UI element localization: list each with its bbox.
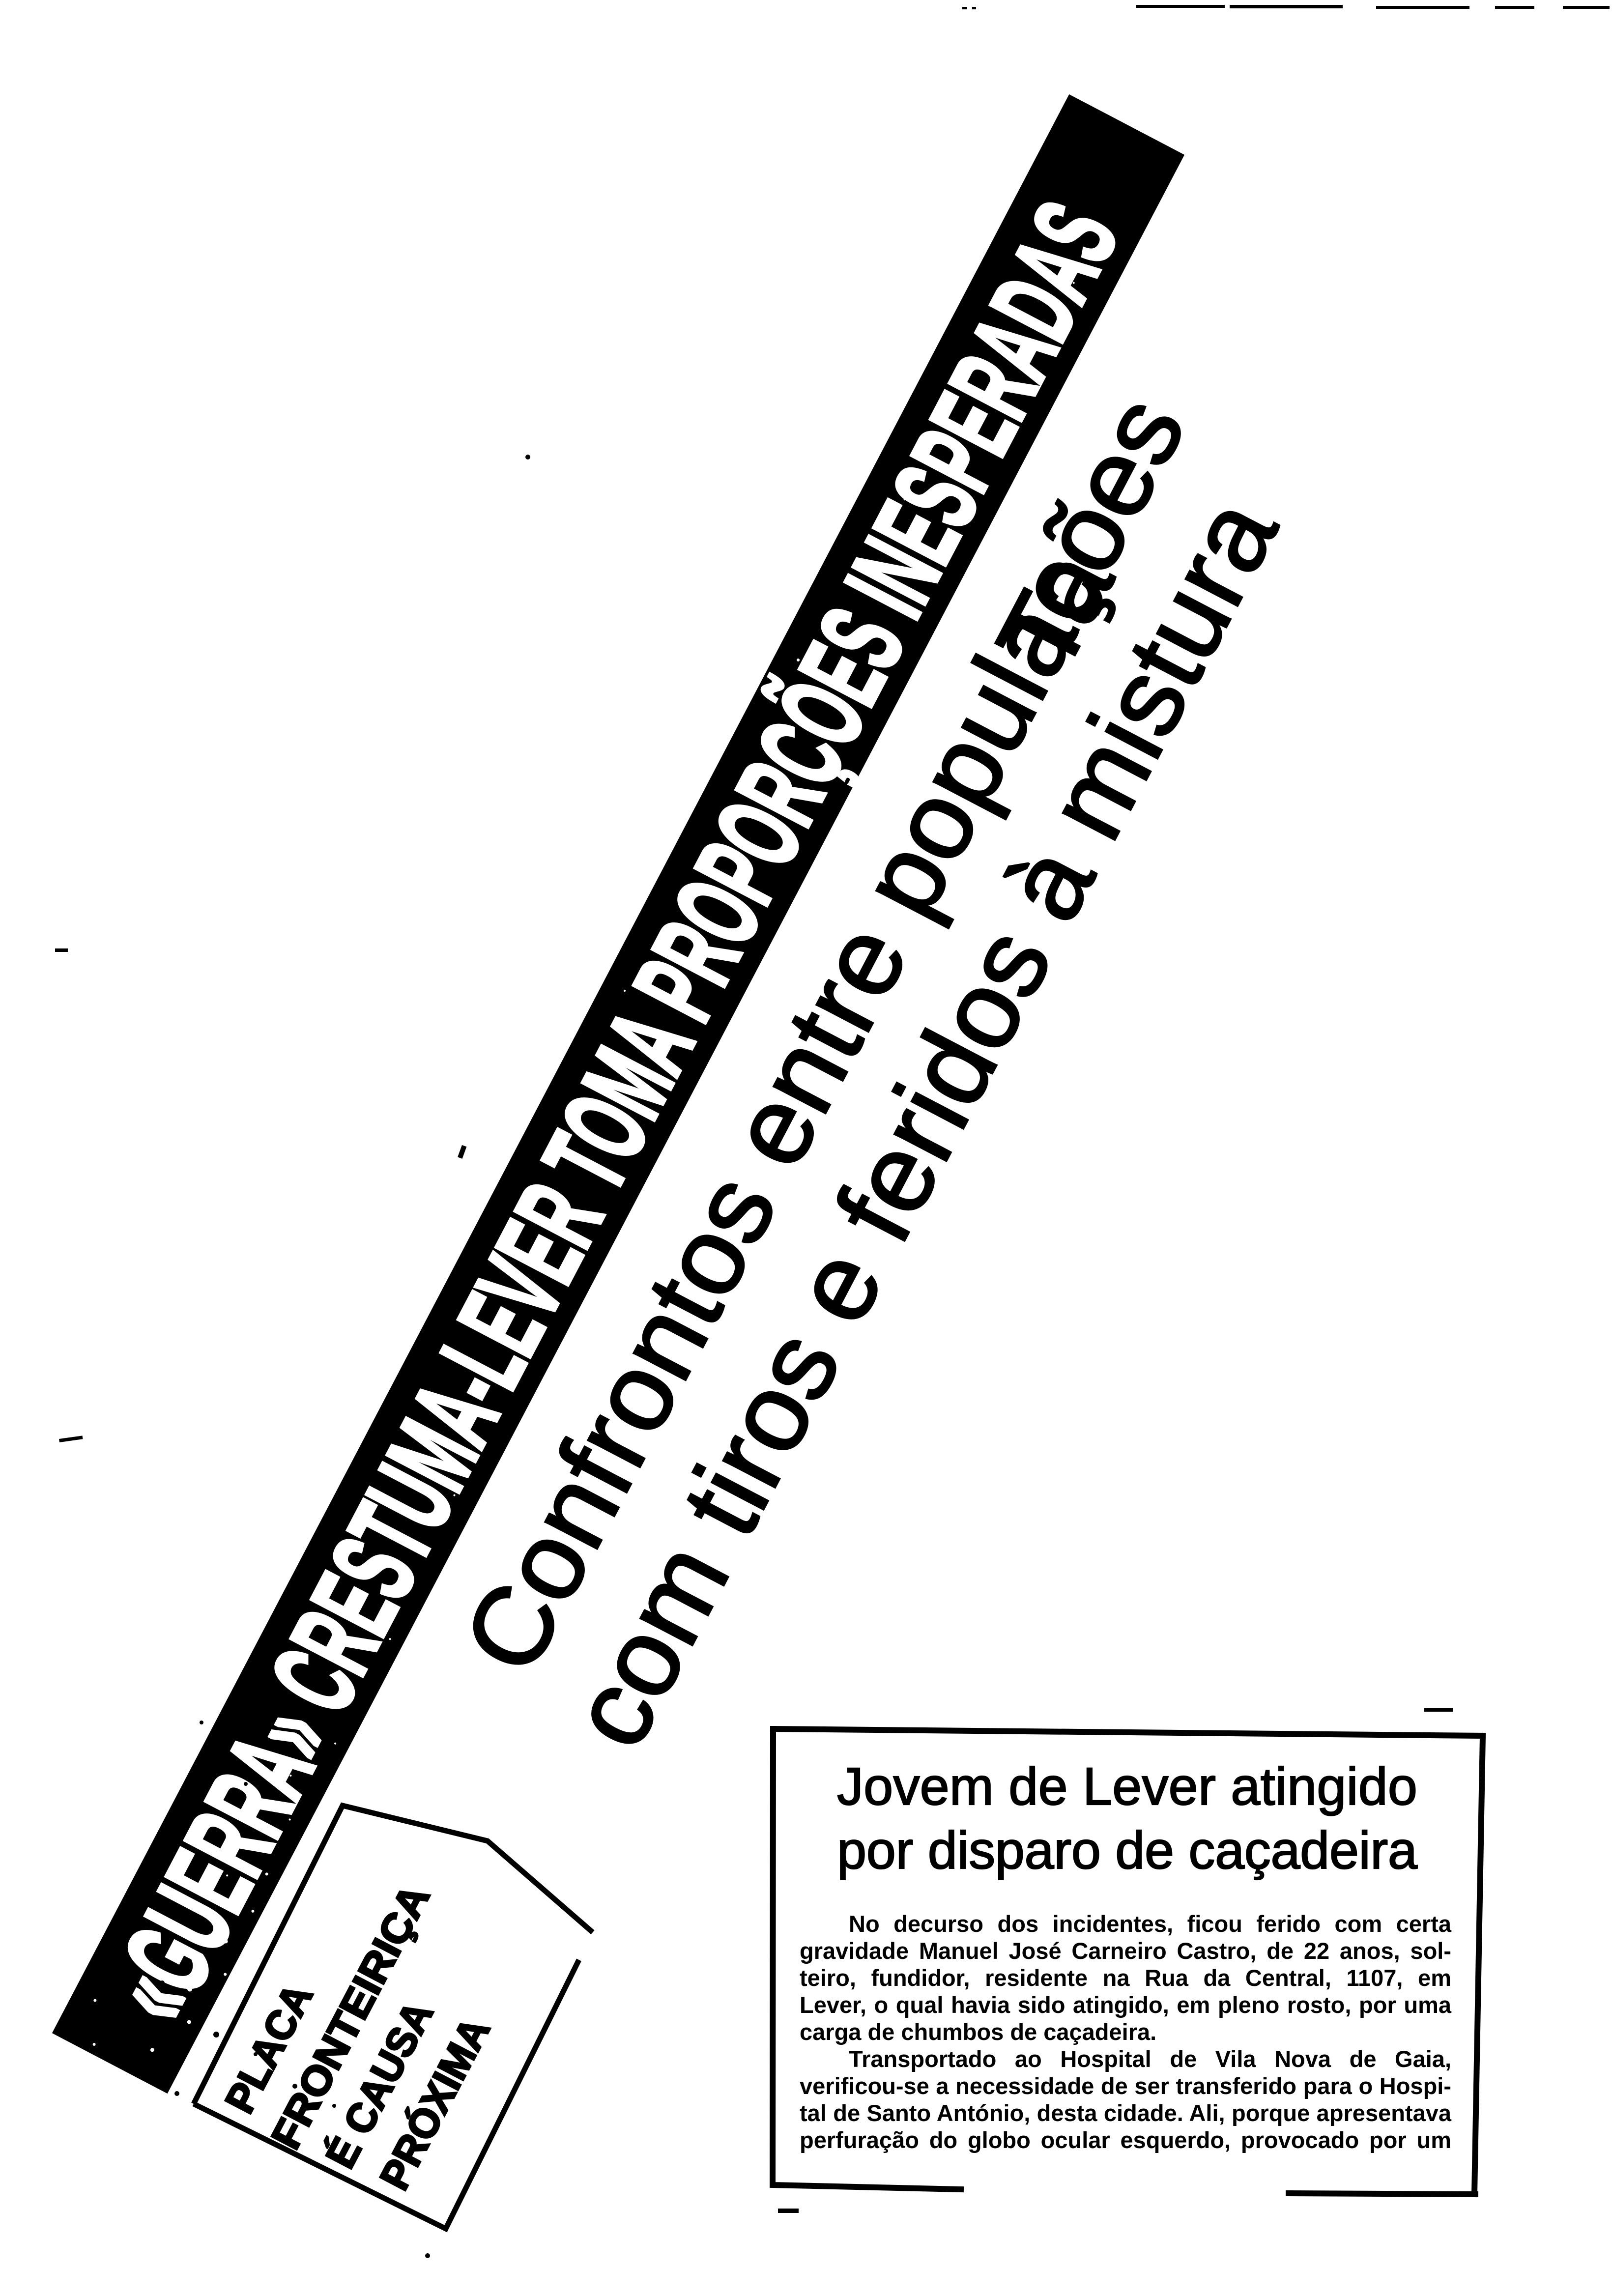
- svg-text:Jovem de Lever atingido: Jovem de Lever atingido: [837, 1756, 1417, 1816]
- svg-text:por disparo de caçadeira: por disparo de caçadeira: [837, 1820, 1418, 1880]
